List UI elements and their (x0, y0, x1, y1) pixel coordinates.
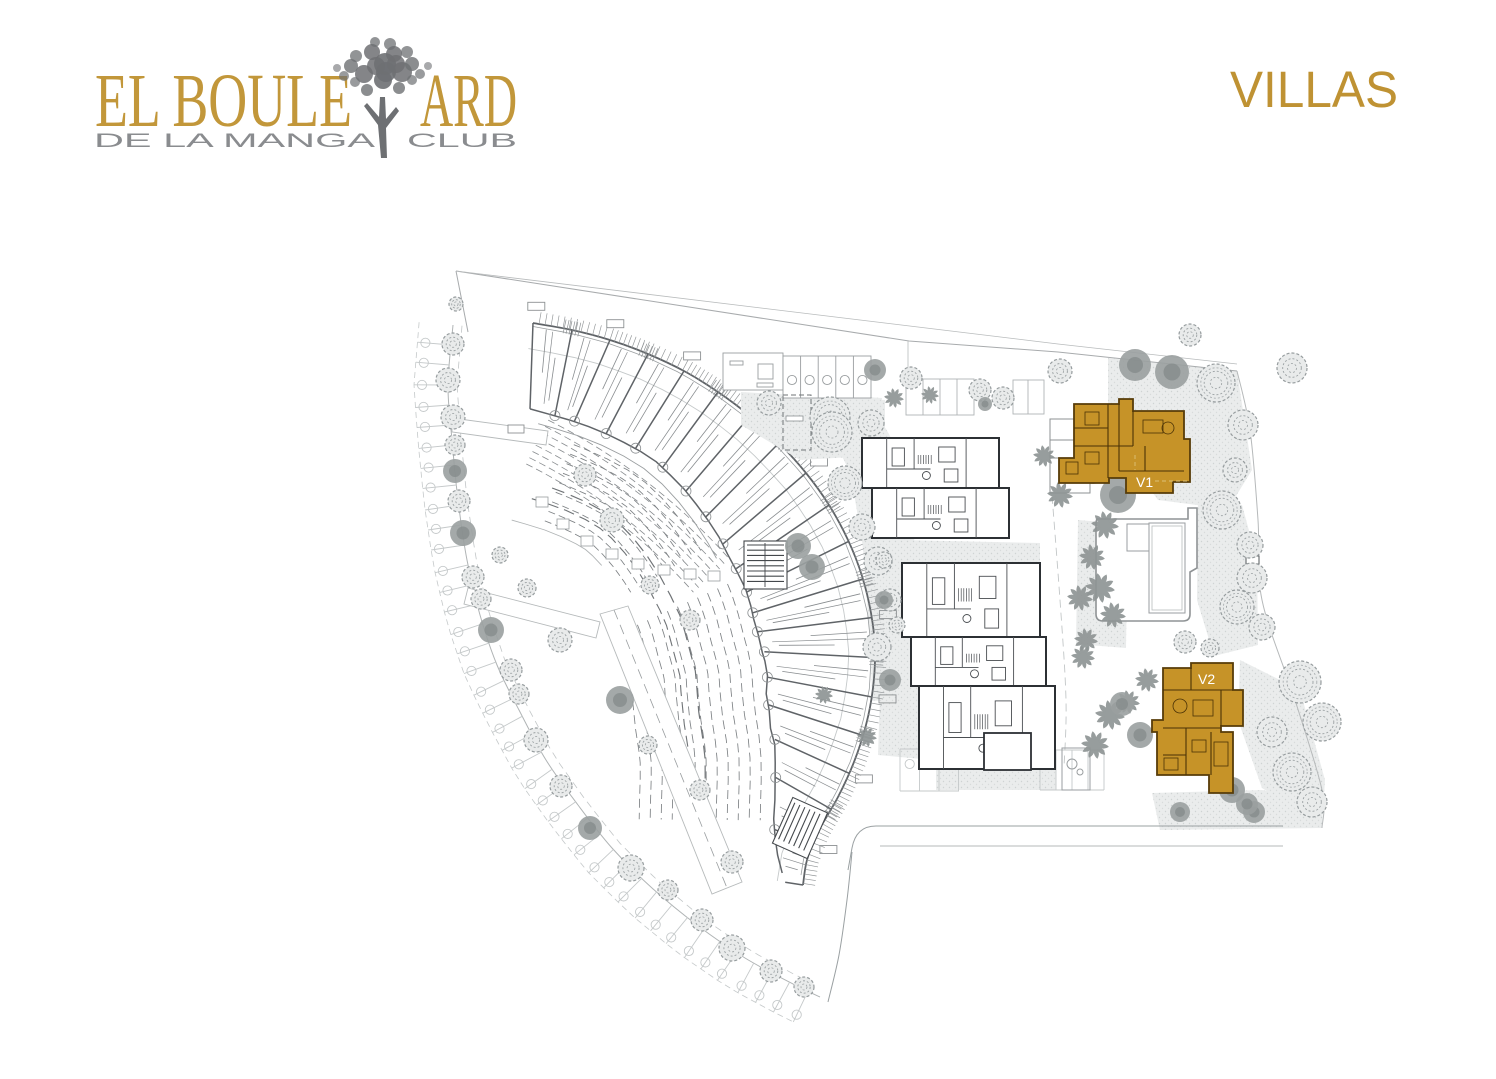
svg-text:V1: V1 (1136, 474, 1153, 490)
svg-text:V2: V2 (1198, 671, 1215, 687)
